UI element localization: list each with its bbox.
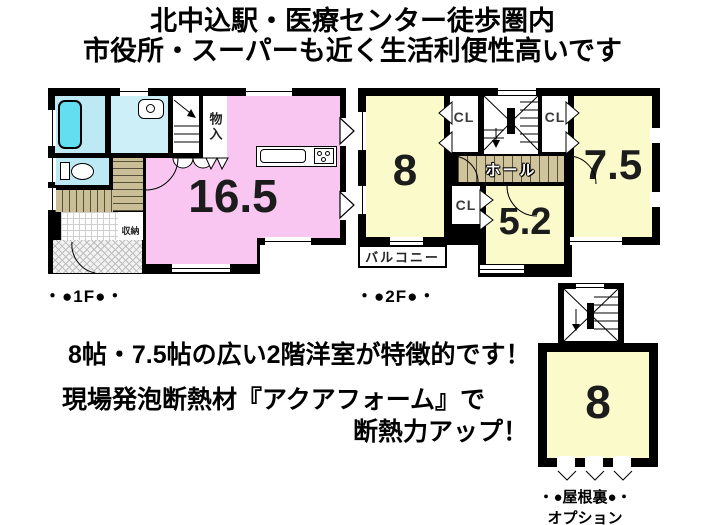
door-arc (568, 156, 596, 184)
feature-note-line-3: 断熱力アップ！ (260, 412, 528, 448)
vent-chevron-icon (558, 471, 632, 480)
feature-note-line-2: 現場発泡断熱材『アクアフォーム』で (62, 380, 485, 416)
attic-caption: ・●屋根裏●・ オプション (520, 486, 650, 525)
attic-caption-line-2: オプション (520, 507, 650, 525)
feature-note-line-1: 8帖・7.5帖の広い2階洋室が特徴的です！ (68, 335, 531, 371)
door-arc (72, 242, 95, 273)
closet-door-icon (206, 158, 228, 169)
floor-2f-caption: ・●2F●・ (356, 282, 436, 307)
stairs-icon (564, 289, 618, 341)
real-estate-floorplan-flyer: 北中込駅・医療センター徒歩圏内 市役所・スーパーも近く生活利便性高いです 物入 … (0, 0, 705, 525)
floorplan-1f-detail-icons (48, 88, 353, 278)
floorplan-2f-detail-icons (358, 88, 660, 280)
floor-1f-caption: ・●1F●・ (44, 282, 124, 307)
stairs-up-icon (174, 100, 199, 142)
attic-caption-line-1: ・●屋根裏●・ (520, 486, 650, 507)
door-arc (146, 158, 178, 190)
header-line-2: 市役所・スーパーも近く生活利便性高いです (0, 36, 705, 66)
door-arc (507, 186, 537, 216)
door-arc (452, 156, 478, 182)
stairs-icon (484, 96, 538, 150)
header-copy: 北中込駅・医療センター徒歩圏内 市役所・スーパーも近く生活利便性高いです (0, 6, 705, 66)
attic-detail-icons (538, 283, 658, 488)
header-line-1: 北中込駅・医療センター徒歩圏内 (0, 6, 705, 36)
awning-window-icon (340, 118, 354, 218)
